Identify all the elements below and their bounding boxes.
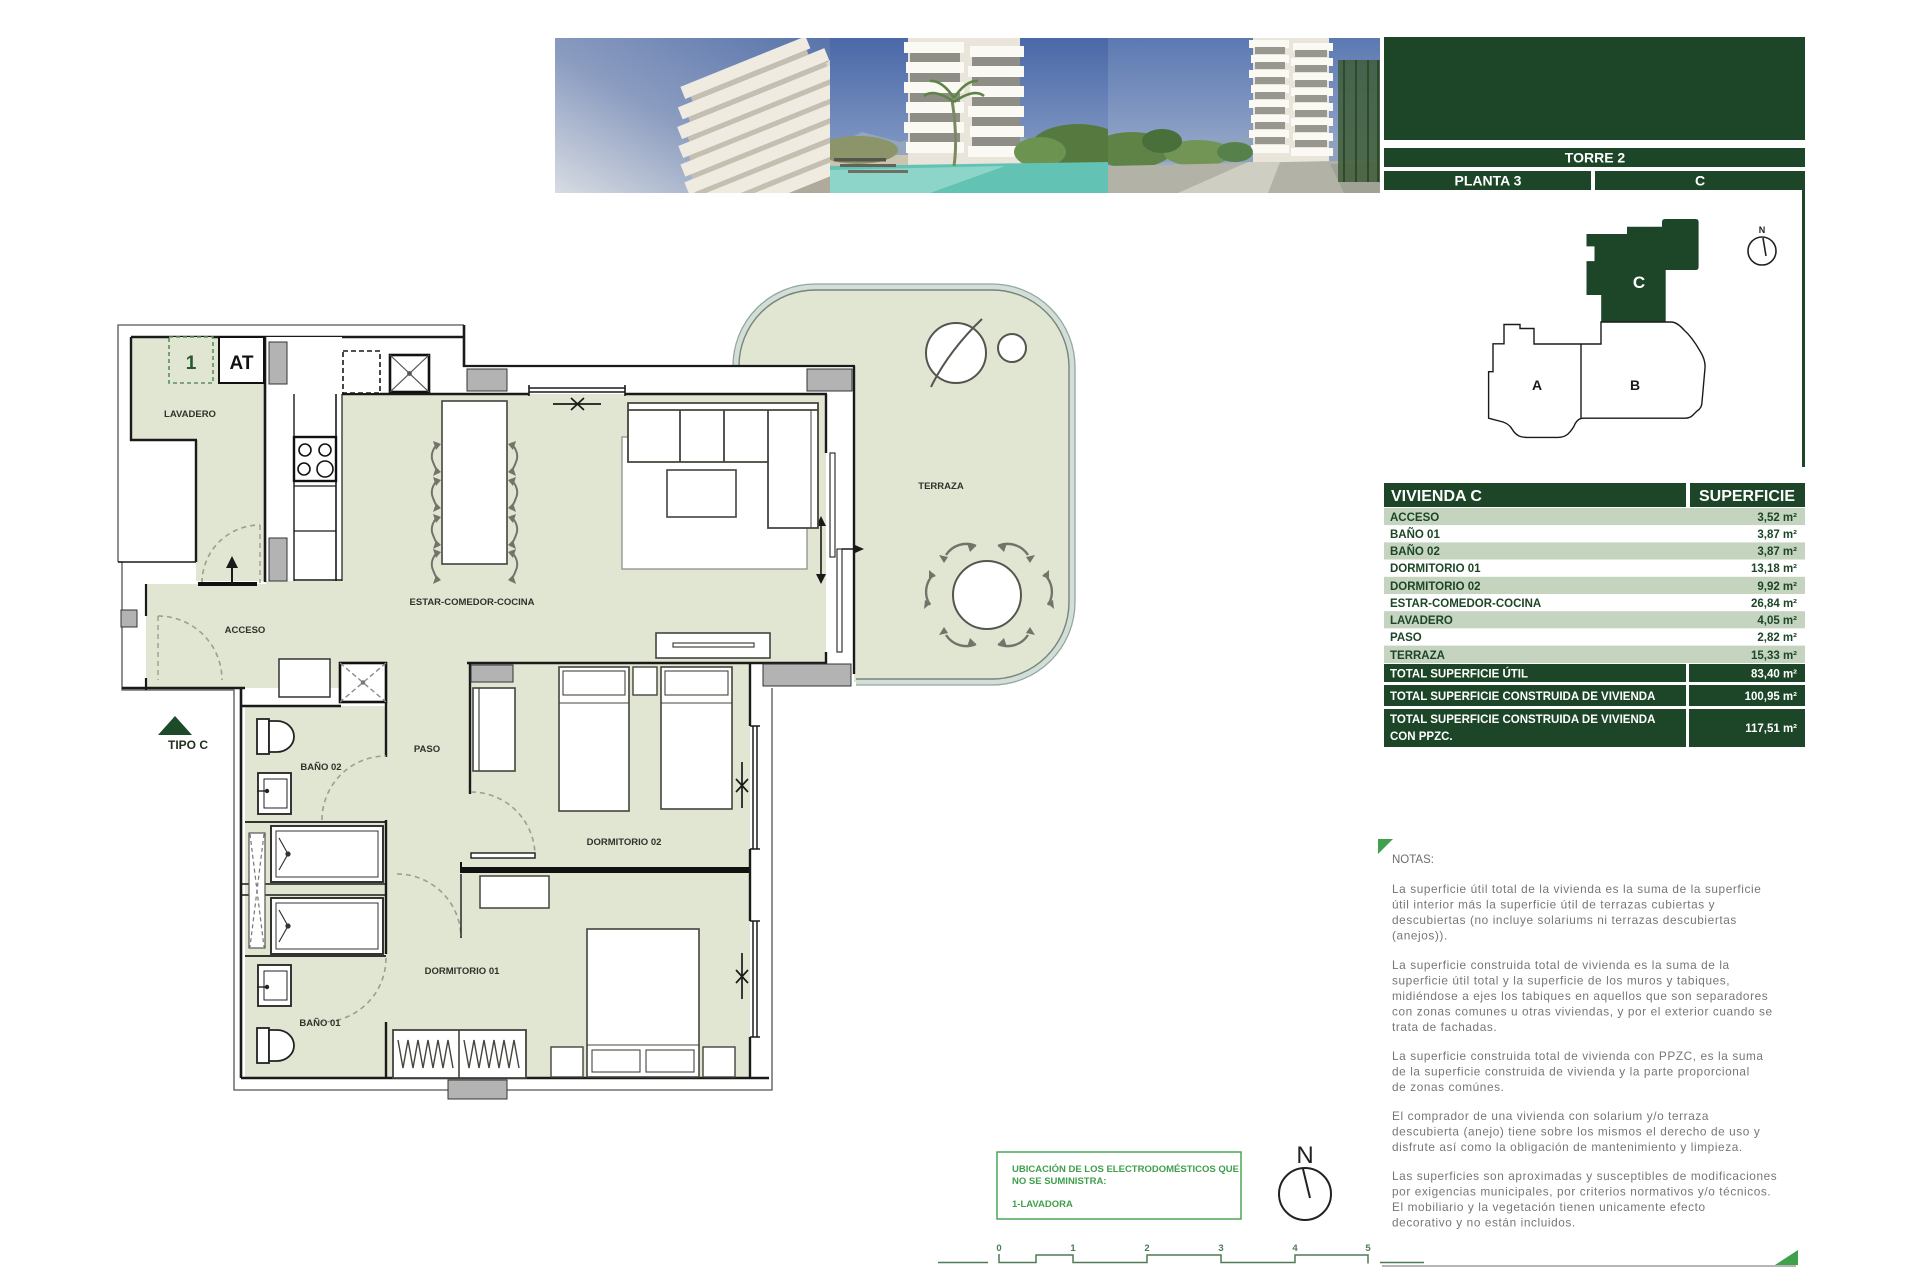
svg-text:5: 5 bbox=[1365, 1243, 1371, 1254]
svg-text:NOTAS:: NOTAS: bbox=[1392, 854, 1434, 866]
svg-text:4: 4 bbox=[1292, 1243, 1298, 1254]
svg-text:El mobiliario y la vegetación: El mobiliario y la vegetación tienen uni… bbox=[1392, 1200, 1706, 1214]
svg-text:midiéndose a ejes los tabiques: midiéndose a ejes los tabiques en aquell… bbox=[1392, 989, 1768, 1003]
svg-text:ACCESO: ACCESO bbox=[225, 625, 266, 636]
svg-text:ESTAR-COMEDOR-COCINA: ESTAR-COMEDOR-COCINA bbox=[410, 597, 535, 608]
svg-text:TERRAZA: TERRAZA bbox=[1390, 650, 1445, 662]
svg-text:UBICACIÓN DE LOS ELECTRODOMÉST: UBICACIÓN DE LOS ELECTRODOMÉSTICOS QUE bbox=[1012, 1163, 1239, 1175]
svg-text:1-LAVADORA: 1-LAVADORA bbox=[1012, 1199, 1073, 1210]
svg-text:descubierta (anejo) tiene sobr: descubierta (anejo) tiene sobre los mism… bbox=[1392, 1125, 1760, 1139]
svg-text:ESTAR-COMEDOR-COCINA: ESTAR-COMEDOR-COCINA bbox=[1390, 598, 1541, 610]
svg-text:La superficie útil total de la: La superficie útil total de la vivienda … bbox=[1392, 882, 1761, 896]
svg-text:3,52 m²: 3,52 m² bbox=[1757, 512, 1797, 524]
svg-text:DORMITORIO 02: DORMITORIO 02 bbox=[1390, 581, 1481, 593]
svg-text:BAÑO 01: BAÑO 01 bbox=[299, 1018, 341, 1029]
svg-text:NO SE SUMINISTRA:: NO SE SUMINISTRA: bbox=[1012, 1176, 1106, 1187]
svg-text:CON PPZC.: CON PPZC. bbox=[1390, 731, 1453, 743]
svg-text:por exigencias municipales, po: por exigencias municipales, por criterio… bbox=[1392, 1185, 1771, 1199]
svg-text:superficie útil total y la sup: superficie útil total y la superficie de… bbox=[1392, 974, 1730, 988]
svg-text:PASO: PASO bbox=[414, 744, 440, 755]
svg-text:3,87 m²: 3,87 m² bbox=[1757, 529, 1797, 541]
svg-text:AT: AT bbox=[230, 353, 254, 374]
svg-text:SUPERFICIE: SUPERFICIE bbox=[1699, 488, 1795, 505]
svg-text:TOTAL SUPERFICIE ÚTIL: TOTAL SUPERFICIE ÚTIL bbox=[1390, 668, 1528, 681]
svg-text:TORRE 2: TORRE 2 bbox=[1565, 150, 1626, 166]
svg-text:A: A bbox=[1532, 377, 1542, 393]
svg-text:3: 3 bbox=[1218, 1243, 1223, 1254]
svg-text:La superficie construida total: La superficie construida total de vivien… bbox=[1392, 958, 1730, 972]
svg-text:BAÑO 01: BAÑO 01 bbox=[1390, 528, 1440, 541]
svg-text:C: C bbox=[1633, 273, 1645, 292]
svg-text:4,05 m²: 4,05 m² bbox=[1757, 615, 1797, 627]
svg-text:N: N bbox=[1759, 225, 1766, 235]
svg-text:de zonas comúnes.: de zonas comúnes. bbox=[1392, 1080, 1505, 1094]
svg-text:trata de fachadas.: trata de fachadas. bbox=[1392, 1020, 1497, 1034]
svg-text:VIVIENDA C: VIVIENDA C bbox=[1391, 488, 1482, 505]
svg-text:DORMITORIO 01: DORMITORIO 01 bbox=[425, 966, 500, 977]
svg-text:TIPO C: TIPO C bbox=[168, 738, 208, 752]
svg-text:ACCESO: ACCESO bbox=[1390, 512, 1439, 524]
svg-text:13,18 m²: 13,18 m² bbox=[1751, 563, 1797, 575]
svg-text:El comprador de una vivienda c: El comprador de una vivienda con solariu… bbox=[1392, 1109, 1709, 1123]
svg-text:PASO: PASO bbox=[1390, 632, 1422, 644]
svg-text:0: 0 bbox=[996, 1243, 1001, 1254]
svg-text:disfrute así como la obligació: disfrute así como la obligación de mante… bbox=[1392, 1140, 1743, 1154]
svg-text:descubiertas (no incluye solar: descubiertas (no incluye solariums ni te… bbox=[1392, 913, 1737, 927]
svg-text:BAÑO 02: BAÑO 02 bbox=[1390, 545, 1440, 558]
svg-text:de la superficie construida de: de la superficie construida de vivienda … bbox=[1392, 1065, 1750, 1079]
svg-text:decorativo y no están incluido: decorativo y no están incluidos. bbox=[1392, 1216, 1576, 1230]
svg-text:con zonas comunes u otras vivi: con zonas comunes u otras viviendas, y p… bbox=[1392, 1005, 1773, 1019]
svg-text:LAVADERO: LAVADERO bbox=[164, 409, 216, 420]
svg-text:Las superficies son aproximada: Las superficies son aproximadas y suscep… bbox=[1392, 1169, 1777, 1183]
svg-text:útil interior más la superfici: útil interior más la superficie útil de … bbox=[1392, 898, 1715, 912]
svg-text:1: 1 bbox=[186, 353, 197, 374]
svg-text:B: B bbox=[1630, 377, 1640, 393]
svg-text:BAÑO 02: BAÑO 02 bbox=[300, 762, 341, 773]
svg-text:1: 1 bbox=[1070, 1243, 1076, 1254]
svg-text:LAVADERO: LAVADERO bbox=[1390, 615, 1453, 627]
svg-text:TOTAL SUPERFICIE CONSTRUIDA DE: TOTAL SUPERFICIE CONSTRUIDA DE VIVIENDA bbox=[1390, 691, 1655, 703]
svg-text:15,33 m²: 15,33 m² bbox=[1751, 650, 1797, 662]
svg-text:La superficie construida total: La superficie construida total de vivien… bbox=[1392, 1049, 1764, 1063]
svg-text:100,95 m²: 100,95 m² bbox=[1745, 691, 1798, 703]
svg-text:N: N bbox=[1296, 1142, 1313, 1169]
svg-text:TOTAL SUPERFICIE CONSTRUIDA DE: TOTAL SUPERFICIE CONSTRUIDA DE VIVIENDA bbox=[1390, 714, 1655, 726]
svg-text:TERRAZA: TERRAZA bbox=[918, 481, 964, 492]
svg-text:PLANTA 3: PLANTA 3 bbox=[1455, 173, 1522, 189]
svg-text:DORMITORIO 01: DORMITORIO 01 bbox=[1390, 563, 1481, 575]
svg-text:DORMITORIO 02: DORMITORIO 02 bbox=[587, 837, 662, 848]
svg-text:117,51 m²: 117,51 m² bbox=[1745, 723, 1797, 735]
svg-text:9,92 m²: 9,92 m² bbox=[1757, 581, 1797, 593]
svg-text:26,84 m²: 26,84 m² bbox=[1751, 598, 1797, 610]
svg-text:C: C bbox=[1695, 173, 1705, 189]
svg-text:(anejos)).: (anejos)). bbox=[1392, 929, 1448, 943]
svg-text:3,87 m²: 3,87 m² bbox=[1757, 546, 1797, 558]
svg-text:2,82 m²: 2,82 m² bbox=[1757, 632, 1797, 644]
svg-text:2: 2 bbox=[1144, 1243, 1149, 1254]
svg-text:83,40 m²: 83,40 m² bbox=[1751, 669, 1797, 681]
